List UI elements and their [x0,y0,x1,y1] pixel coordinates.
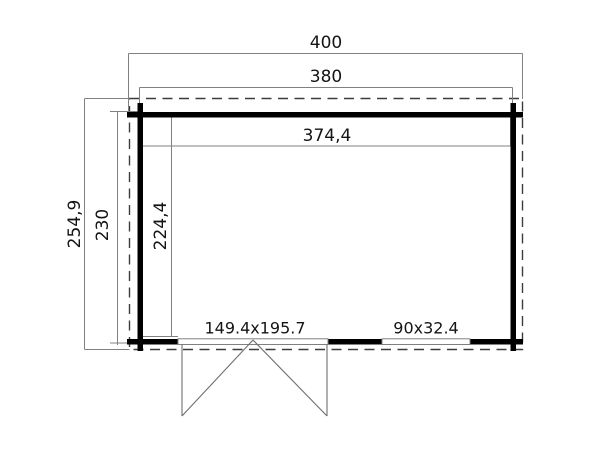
label-door-size: 149.4x195.7 [204,319,305,338]
door-leaf-left-swing [182,340,253,416]
label-roof-depth: 254,9 [65,200,85,249]
label-window-size: 90x32.4 [393,319,458,338]
door-frame [178,339,328,345]
floor-plan-drawing: 400 380 374,4 254,9 230 224,4 149.4x195.… [0,0,600,450]
wall-bottom-left-segment [127,339,178,345]
wall-top [127,112,523,118]
door-leaf-right-swing [253,340,327,416]
double-door [178,339,328,416]
window [382,339,470,345]
dimension-labels: 400 380 374,4 254,9 230 224,4 149.4x195.… [65,33,459,338]
label-interior-width: 374,4 [303,126,352,146]
wall-left [138,103,144,351]
label-roof-width: 400 [310,33,342,53]
label-wall-width: 380 [310,67,342,87]
label-wall-depth: 230 [93,209,113,241]
wall-bottom-middle-segment [328,339,382,345]
label-interior-depth: 224,4 [151,202,171,251]
wall-right [511,103,517,351]
wall-bottom-right-segment [470,339,523,345]
